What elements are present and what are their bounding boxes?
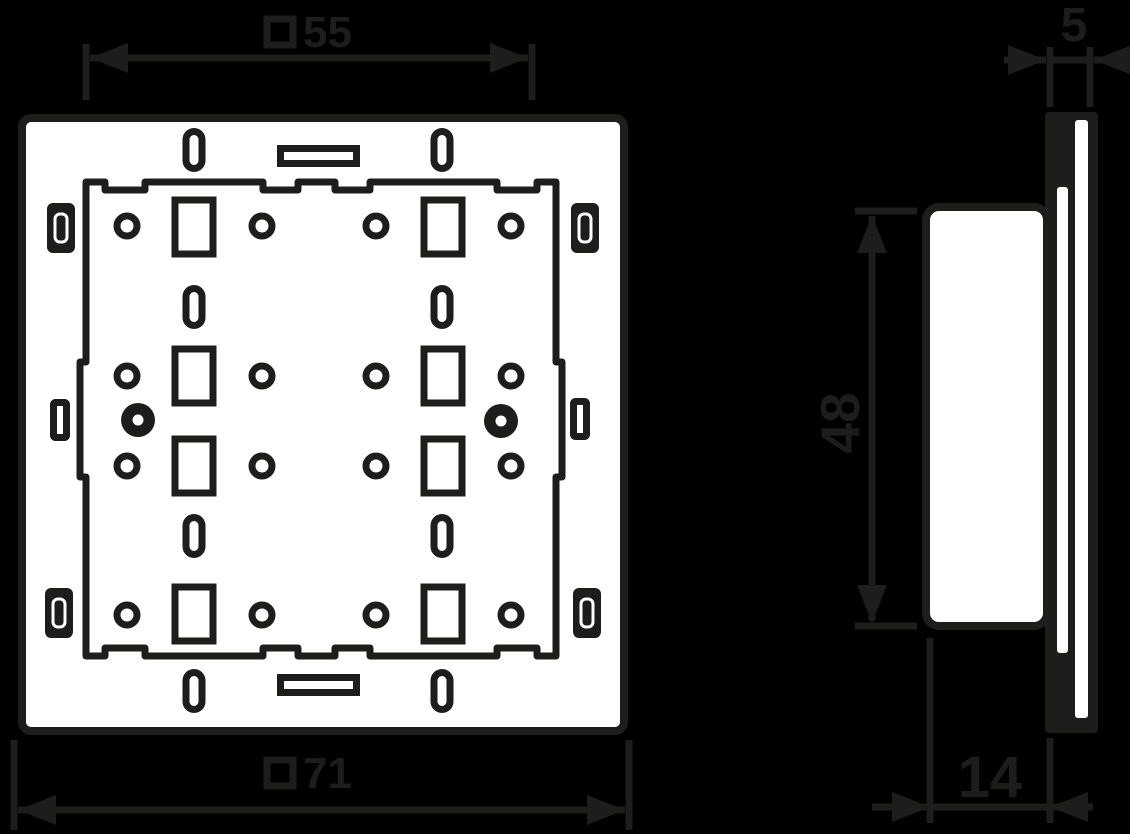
front-view: 55 71 [14, 8, 629, 830]
dimension-label: 5 [1061, 0, 1088, 52]
contact-hole [501, 456, 521, 476]
contact-opening [175, 349, 213, 403]
plate-slot [186, 518, 202, 555]
contact-hole [117, 605, 137, 625]
contact-hole [252, 605, 272, 625]
frame-profile-face [1075, 120, 1088, 718]
arrowhead-icon [1050, 792, 1088, 822]
contact-opening [424, 349, 462, 403]
dimension-drawing: 55 71 5 48 [0, 0, 1130, 834]
edge-slot [54, 403, 67, 438]
plate-slot [434, 289, 450, 326]
frame-slot [186, 132, 202, 169]
contact-hole [366, 366, 386, 386]
contact-opening [175, 587, 213, 641]
frame-slot [434, 673, 450, 710]
dimension-front-outer-width: 71 [14, 740, 629, 830]
arrowhead-icon [18, 795, 56, 825]
contact-hole [117, 456, 137, 476]
device-body [926, 207, 1047, 626]
plate-slot [186, 289, 202, 326]
technical-drawing-canvas: 55 71 5 48 [0, 0, 1130, 834]
contact-opening [424, 587, 462, 641]
frame-latch-slot [281, 149, 357, 164]
screw-cam [121, 403, 155, 437]
contact-opening [424, 200, 462, 254]
arrowhead-icon [857, 215, 887, 253]
dimension-frame-thickness: 5 [1004, 0, 1130, 107]
dimension-label: 71 [303, 749, 352, 798]
dimension-body-height: 48 [809, 211, 917, 626]
contact-hole [252, 216, 272, 236]
contact-hole [252, 366, 272, 386]
screw-cam [484, 404, 518, 438]
contact-opening [424, 439, 462, 493]
arrowhead-icon [857, 585, 887, 623]
arrowhead-icon [892, 792, 930, 822]
contact-opening [175, 439, 213, 493]
claw-clamp [45, 588, 73, 638]
frame-profile [1045, 112, 1098, 733]
contact-hole [117, 366, 137, 386]
dimension-front-inner-width: 55 [86, 8, 532, 100]
contact-hole [366, 456, 386, 476]
contact-hole [501, 366, 521, 386]
edge-slot [574, 402, 587, 437]
contact-hole [252, 456, 272, 476]
contact-opening [175, 200, 213, 254]
square-symbol-icon [267, 760, 293, 786]
arrowhead-icon [490, 43, 528, 73]
arrowhead-icon [1094, 45, 1130, 75]
dimension-label: 14 [958, 745, 1023, 810]
frame-slot [186, 673, 202, 710]
dimension-label: 48 [809, 392, 871, 453]
arrowhead-icon [1008, 45, 1046, 75]
claw-clamp [47, 203, 75, 253]
contact-hole [366, 216, 386, 236]
dimension-label: 55 [303, 8, 352, 57]
plate-slot [434, 518, 450, 555]
claw-clamp [573, 588, 601, 638]
frame-slot [434, 132, 450, 169]
arrowhead-icon [90, 43, 128, 73]
arrowhead-icon [587, 795, 625, 825]
frame-profile-step [1057, 187, 1068, 653]
side-view: 5 48 14 [809, 0, 1130, 823]
claw-clamp [571, 203, 599, 253]
contact-hole [501, 216, 521, 236]
contact-hole [366, 605, 386, 625]
contact-hole [117, 216, 137, 236]
contact-hole [501, 605, 521, 625]
frame-latch-slot [281, 678, 357, 693]
square-symbol-icon [267, 19, 293, 45]
